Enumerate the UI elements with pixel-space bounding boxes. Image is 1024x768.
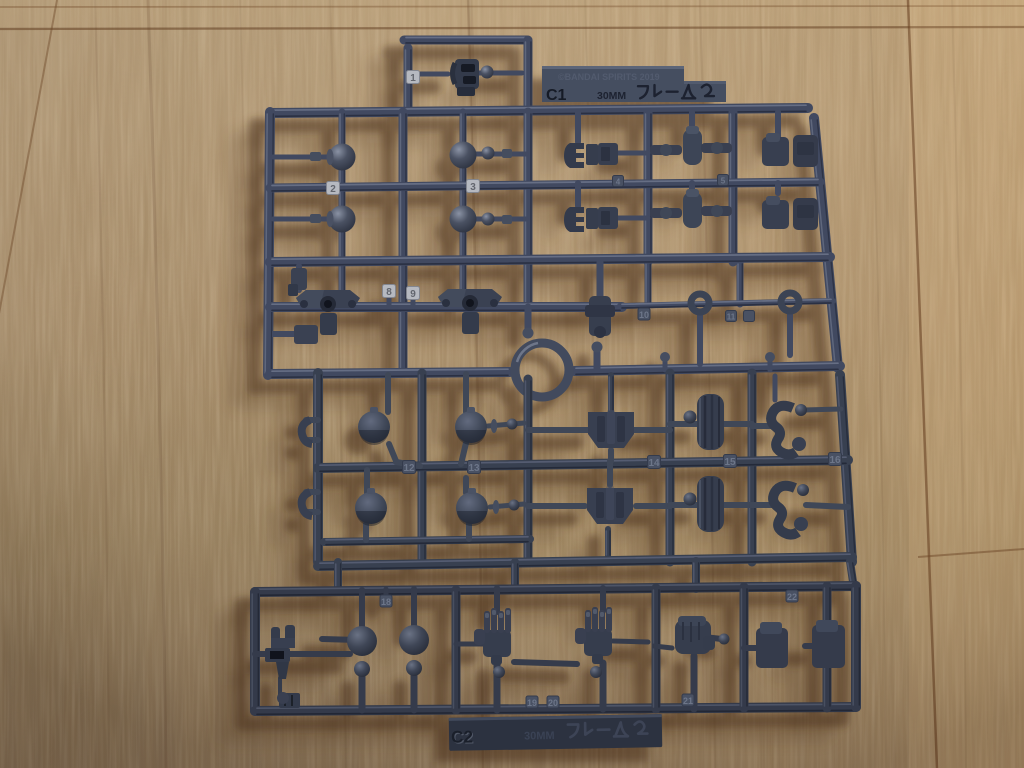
svg-text:19: 19	[527, 698, 537, 708]
svg-text:4: 4	[616, 178, 621, 187]
svg-text:8: 8	[386, 287, 392, 298]
svg-text:2: 2	[330, 184, 336, 195]
svg-text:20: 20	[548, 698, 558, 708]
svg-text:1: 1	[410, 73, 416, 84]
svg-text:22: 22	[787, 592, 797, 602]
svg-text:9: 9	[410, 289, 416, 300]
svg-text:12: 12	[403, 463, 415, 474]
svg-text:14: 14	[648, 458, 660, 469]
svg-text:30MM: 30MM	[597, 90, 626, 102]
svg-text:C1: C1	[546, 87, 567, 104]
svg-text:©BANDAI SPIRITS 2019: ©BANDAI SPIRITS 2019	[558, 72, 660, 82]
svg-text:3: 3	[470, 182, 476, 193]
svg-text:21: 21	[683, 696, 693, 706]
svg-text:30MM: 30MM	[524, 730, 555, 743]
svg-text:5: 5	[721, 177, 726, 186]
svg-text:C2: C2	[451, 727, 473, 746]
svg-text:11: 11	[727, 313, 736, 322]
svg-text:10: 10	[639, 310, 649, 320]
svg-text:13: 13	[468, 463, 480, 474]
svg-text:15: 15	[724, 457, 736, 468]
svg-text:18: 18	[381, 597, 391, 607]
svg-text:16: 16	[829, 455, 841, 466]
